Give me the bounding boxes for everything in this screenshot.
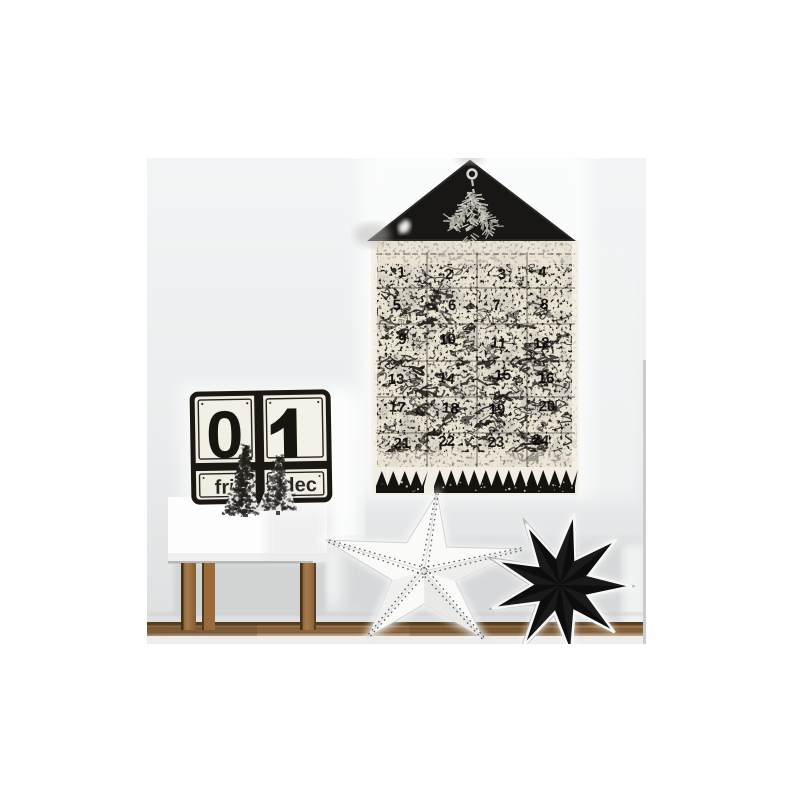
svg-text:6: 6 [448,297,457,314]
svg-text:8: 8 [540,296,550,314]
svg-text:5: 5 [392,297,401,314]
svg-text:19: 19 [488,401,505,418]
svg-text:21: 21 [393,435,410,452]
svg-text:4: 4 [538,264,548,281]
svg-text:1: 1 [397,264,407,282]
svg-text:13: 13 [388,371,405,388]
svg-text:10: 10 [439,330,457,348]
svg-text:2: 2 [444,266,454,284]
svg-text:20: 20 [538,398,555,416]
svg-text:14: 14 [437,369,456,388]
svg-text:24: 24 [531,431,550,450]
svg-text:7: 7 [492,297,502,315]
svg-text:23: 23 [487,434,504,452]
svg-text:16: 16 [538,370,555,387]
svg-text:15: 15 [494,367,512,385]
svg-text:12: 12 [532,334,550,353]
svg-text:17: 17 [388,398,406,416]
svg-text:3: 3 [498,266,507,283]
svg-text:18: 18 [441,399,459,417]
svg-text:11: 11 [490,334,507,352]
svg-text:22: 22 [438,433,456,451]
svg-text:9: 9 [398,331,408,349]
